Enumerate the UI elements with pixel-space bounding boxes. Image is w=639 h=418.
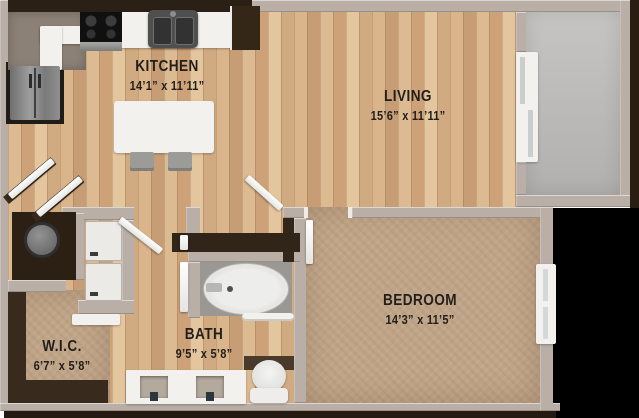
window-glass-lower <box>543 307 548 339</box>
bedroom-name: BEDROOM <box>352 291 488 312</box>
dryer <box>85 263 122 301</box>
wall-living-balcony-upper <box>516 12 526 52</box>
wall-laundry-bottom <box>78 300 134 314</box>
wall-bedroom-right-upper <box>540 207 553 266</box>
room-label-bedroom: BEDROOM 14’3” x 11’5” <box>352 291 488 329</box>
dryer-handle <box>90 292 98 296</box>
window-glass-upper <box>543 269 548 301</box>
tub-drain <box>227 286 233 292</box>
kitchen-dims: 14’1” x 11’11” <box>99 78 235 95</box>
sink-basin-left <box>153 17 172 45</box>
wall-bottom <box>0 403 560 411</box>
sink-faucet <box>170 11 176 17</box>
washer-handle <box>90 252 98 256</box>
wall-tub-left <box>188 262 200 318</box>
wall-wic-top <box>8 280 66 292</box>
wall-living-balcony-lower <box>516 162 526 195</box>
wic-name: W.I.C. <box>11 337 113 358</box>
room-label-wic: W.I.C. 6’7” x 5’8” <box>11 337 113 375</box>
towel-bar <box>242 313 294 321</box>
hall-door-leaf-small <box>180 235 188 250</box>
shadow-exterior-right <box>553 208 639 418</box>
dining-chair-right <box>168 152 192 171</box>
vanity-faucet-left <box>150 392 158 401</box>
vanity-faucet-right <box>206 392 214 401</box>
refrigerator <box>10 66 60 120</box>
doorjamb-bedroom-right <box>348 207 352 218</box>
bedroom-door-leaf <box>306 220 313 264</box>
hall-door-leaf-open <box>180 262 188 312</box>
bedroom-window <box>536 264 556 344</box>
bath-linen-shelf <box>172 233 300 252</box>
kitchen-sink <box>148 10 198 48</box>
closet-rod-shelf <box>72 314 120 325</box>
wic-dims: 6’7” x 5’8” <box>11 358 113 375</box>
wic-shelving-bottom <box>8 380 108 403</box>
shadow-exterior-bottom <box>4 411 556 418</box>
floor-plan: KITCHEN 14’1” x 11’11” LIVING 15’6” x 11… <box>0 0 639 418</box>
sliding-door-glass-upper <box>520 57 525 104</box>
dining-chair-left <box>130 152 154 171</box>
bath-dims: 9’5” x 5’8” <box>136 346 272 363</box>
refrigerator-door-split <box>34 68 36 118</box>
sliding-glass-door <box>516 52 538 162</box>
range-cooktop <box>80 12 122 42</box>
dining-table <box>114 101 214 153</box>
living-dims: 15’6” x 11’11” <box>340 108 476 125</box>
sliding-door-glass-lower <box>528 110 533 157</box>
room-label-bath: BATH 9’5” x 5’8” <box>136 325 272 363</box>
balcony-floor <box>526 10 620 195</box>
kitchen-counter-corner-side <box>40 26 62 70</box>
washer <box>85 221 122 261</box>
wall-balcony-bottom <box>516 195 630 207</box>
kitchen-name: KITCHEN <box>99 57 235 78</box>
sink-basin-right <box>175 17 194 45</box>
bedroom-dims: 14’3” x 11’5” <box>352 312 488 329</box>
tub-faucet <box>206 283 222 292</box>
water-heater <box>24 222 60 258</box>
refrigerator-handle-left <box>29 74 32 88</box>
wall-bedroom-right-lower <box>540 342 553 411</box>
doorjamb-bedroom-left <box>304 207 308 218</box>
toilet-tank <box>250 388 288 403</box>
living-name: LIVING <box>340 87 476 108</box>
shadow-balcony-right <box>630 0 639 210</box>
refrigerator-handle-right <box>38 74 41 88</box>
bath-name: BATH <box>136 325 272 346</box>
wall-balcony-right <box>620 0 630 207</box>
wall-bedroom-top <box>352 207 553 218</box>
range-front-panel <box>80 42 122 51</box>
room-label-kitchen: KITCHEN 14’1” x 11’11” <box>99 57 235 95</box>
room-label-living: LIVING 15’6” x 11’11” <box>340 87 476 125</box>
pantry-cabinet <box>230 6 260 50</box>
